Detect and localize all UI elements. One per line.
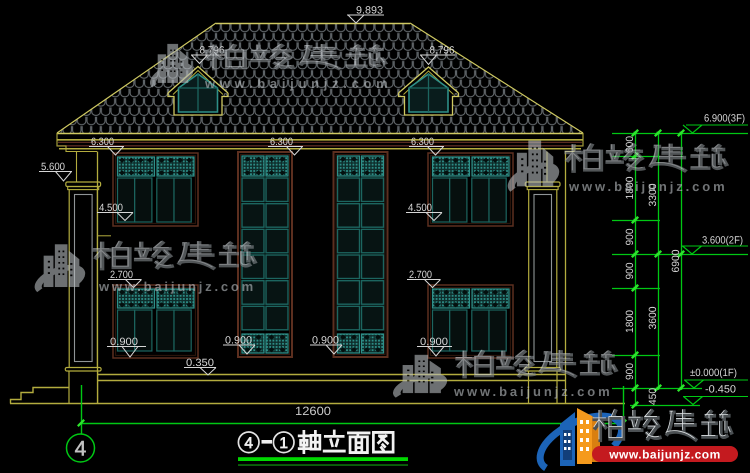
svg-text:900: 900	[624, 262, 636, 279]
svg-text:12600: 12600	[295, 404, 331, 418]
svg-text:±0.000(1F): ±0.000(1F)	[690, 367, 737, 379]
svg-text:900: 900	[624, 363, 636, 380]
svg-text:www.baijunjz.com: www.baijunjz.com	[98, 279, 256, 294]
svg-text:900: 900	[624, 228, 636, 245]
svg-text:www.baijunjz.com: www.baijunjz.com	[608, 448, 721, 462]
svg-text:6900: 6900	[670, 249, 682, 272]
svg-text:4: 4	[244, 435, 253, 452]
svg-text:4: 4	[75, 438, 87, 461]
svg-text:3600: 3600	[647, 306, 659, 329]
svg-text:-0.450: -0.450	[705, 384, 736, 396]
svg-text:3.600(2F): 3.600(2F)	[702, 235, 743, 247]
svg-text:www.baijunjz.com: www.baijunjz.com	[453, 384, 613, 399]
svg-text:450: 450	[647, 388, 659, 405]
svg-text:www.baijunjz.com: www.baijunjz.com	[568, 179, 728, 194]
svg-text:1800: 1800	[624, 310, 636, 333]
svg-text:1: 1	[279, 435, 288, 452]
svg-text:6.900(3F): 6.900(3F)	[704, 113, 745, 125]
svg-text:www.baijunjz.com: www.baijunjz.com	[204, 76, 392, 91]
